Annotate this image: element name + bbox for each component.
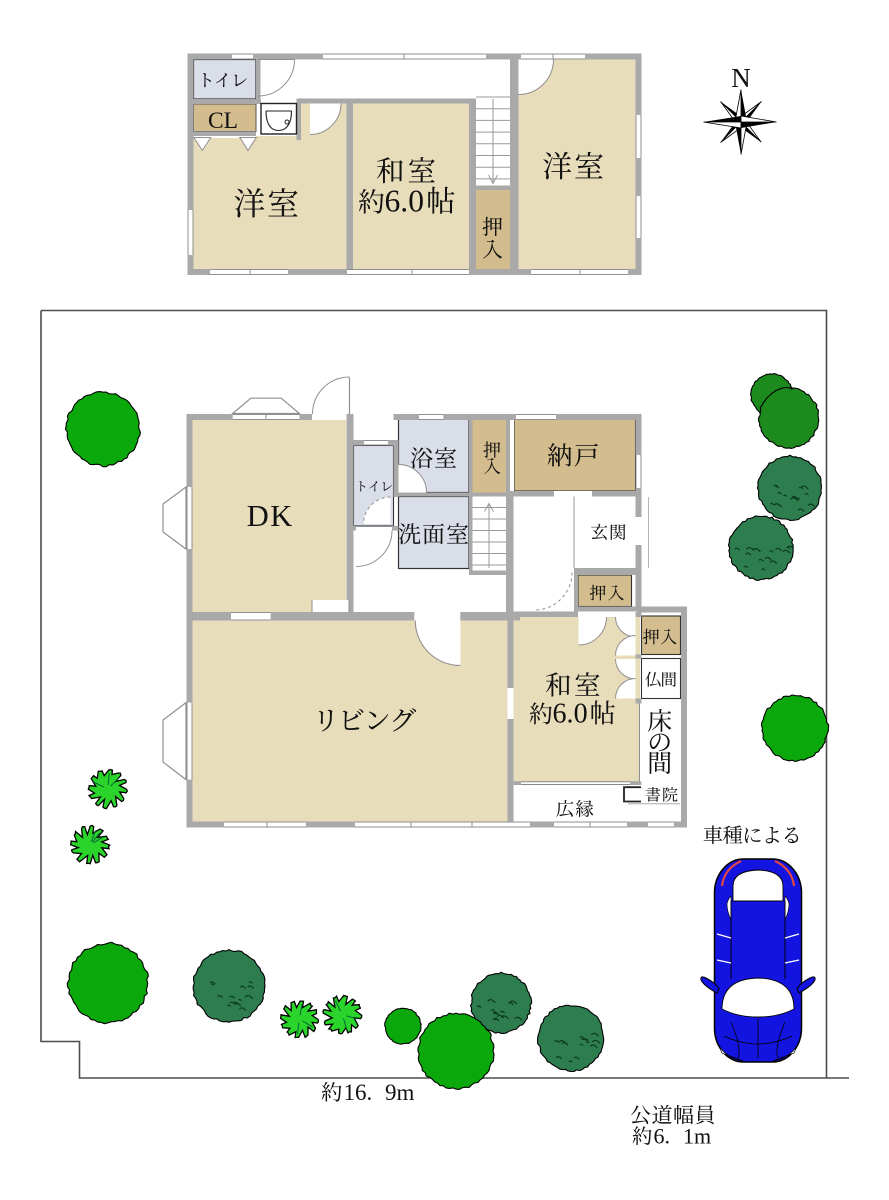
svg-text:CL: CL xyxy=(208,108,238,134)
svg-text:N: N xyxy=(731,63,751,93)
svg-text:6.0: 6.0 xyxy=(553,699,588,730)
svg-text:16.: 16. xyxy=(344,1080,373,1105)
svg-text:6.0: 6.0 xyxy=(385,184,425,219)
svg-text:6.: 6. xyxy=(654,1124,671,1149)
svg-text:1m: 1m xyxy=(683,1124,711,1149)
svg-text:DK: DK xyxy=(247,499,294,533)
svg-text:9m: 9m xyxy=(385,1080,415,1105)
